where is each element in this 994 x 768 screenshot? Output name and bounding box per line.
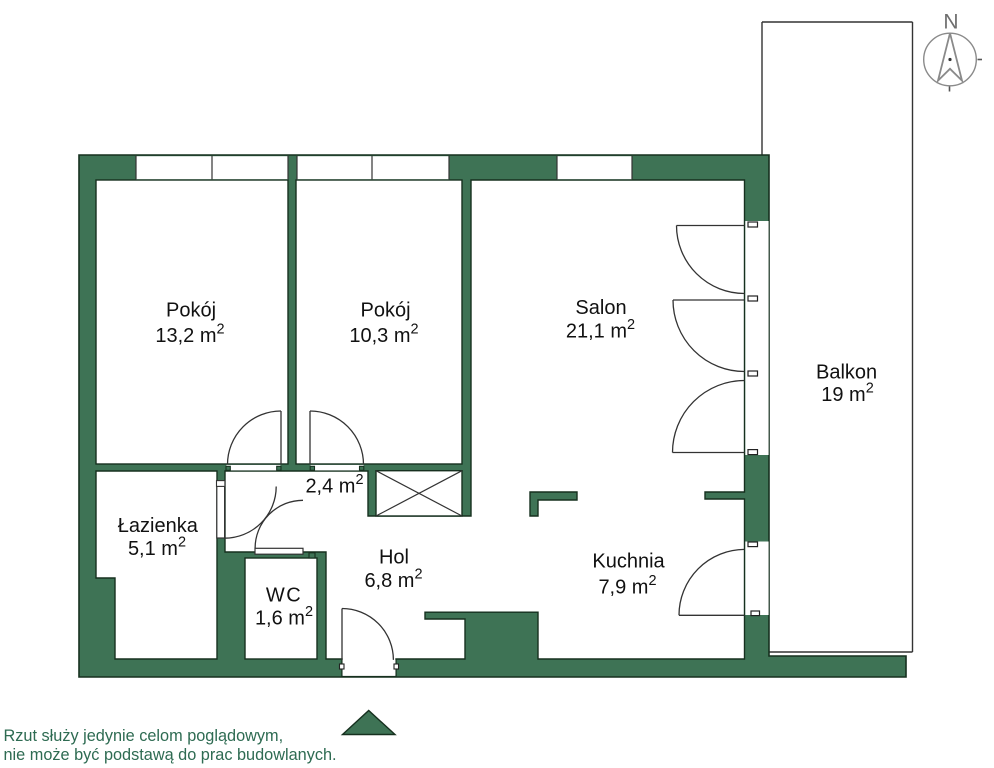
svg-text:WC: WC <box>266 585 302 607</box>
svg-text:Kuchnia: Kuchnia <box>592 551 665 573</box>
svg-text:Łazienka: Łazienka <box>118 515 199 537</box>
svg-text:13,2 m2: 13,2 m2 <box>155 322 224 348</box>
svg-text:N: N <box>943 11 958 34</box>
svg-text:Salon: Salon <box>575 297 626 319</box>
svg-text:Hol: Hol <box>379 547 409 569</box>
svg-text:2,4 m2: 2,4 m2 <box>305 472 363 498</box>
svg-text:Pokój: Pokój <box>360 300 410 322</box>
svg-text:1,6 m2: 1,6 m2 <box>255 604 313 630</box>
svg-text:nie może być podstawą do prac: nie może być podstawą do prac budowlanyc… <box>4 746 337 764</box>
svg-text:7,9 m2: 7,9 m2 <box>598 573 656 599</box>
svg-text:10,3 m2: 10,3 m2 <box>349 322 418 348</box>
svg-text:5,1 m2: 5,1 m2 <box>128 535 186 561</box>
svg-text:6,8 m2: 6,8 m2 <box>364 567 422 593</box>
svg-text:Pokój: Pokój <box>166 300 216 322</box>
svg-text:21,1 m2: 21,1 m2 <box>566 317 635 343</box>
svg-text:Rzut służy jedynie celom poglą: Rzut służy jedynie celom poglądowym, <box>4 727 284 745</box>
